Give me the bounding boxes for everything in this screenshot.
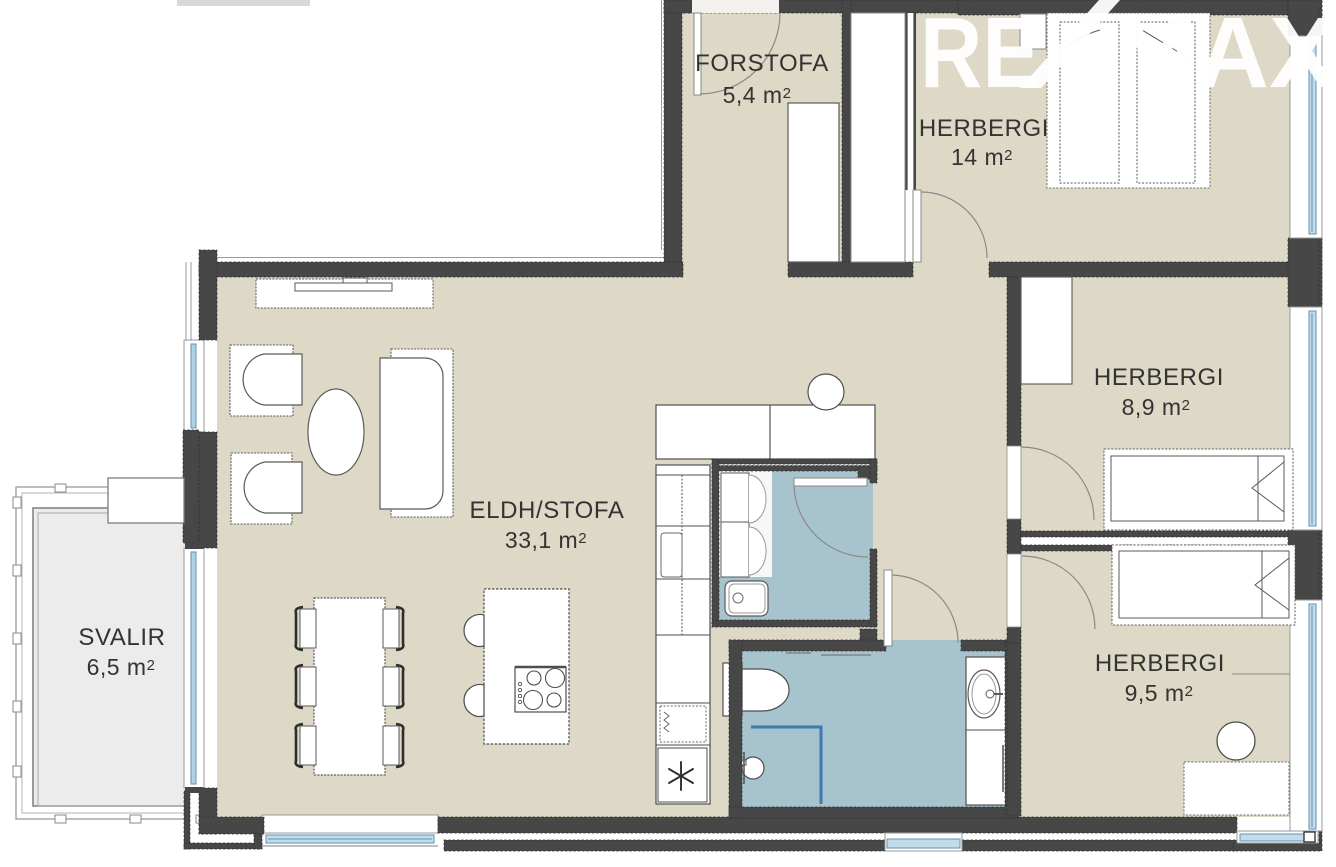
svg-text:14 m2: 14 m2 — [951, 144, 1013, 170]
svg-text:FORSTOFA: FORSTOFA — [695, 50, 829, 77]
svg-text:ELDH/STOFA: ELDH/STOFA — [470, 497, 625, 524]
svg-text:MAX: MAX — [1113, 0, 1336, 109]
svg-text:6,5 m2: 6,5 m2 — [87, 654, 156, 680]
svg-text:HERBERGI: HERBERGI — [1094, 364, 1224, 391]
svg-text:9,5 m2: 9,5 m2 — [1125, 680, 1194, 706]
svg-text:HERBERGI: HERBERGI — [1095, 650, 1225, 677]
svg-text:5,4 m2: 5,4 m2 — [723, 82, 792, 108]
svg-text:HERBERGI: HERBERGI — [919, 115, 1049, 142]
svg-text:8,9 m2: 8,9 m2 — [1122, 394, 1191, 420]
svg-text:33,1 m2: 33,1 m2 — [505, 527, 587, 553]
svg-text:RE: RE — [920, 0, 1040, 109]
svg-text:SVALIR: SVALIR — [78, 624, 165, 651]
